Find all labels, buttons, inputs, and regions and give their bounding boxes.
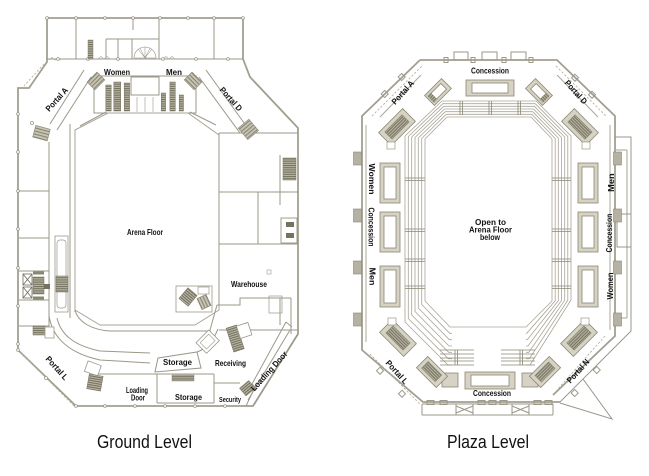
svg-text:Portal D: Portal D [563, 78, 590, 106]
svg-text:Women: Women [605, 273, 615, 300]
svg-text:Plaza Level: Plaza Level [447, 432, 529, 452]
svg-text:Arena Floor: Arena Floor [127, 227, 164, 237]
svg-text:Concession: Concession [604, 214, 614, 253]
svg-text:Storage: Storage [163, 357, 192, 367]
svg-text:Ground Level: Ground Level [97, 432, 192, 452]
svg-text:Storage: Storage [175, 392, 202, 402]
svg-text:Men: Men [368, 268, 378, 286]
svg-text:below: below [480, 232, 500, 242]
svg-text:Door: Door [131, 393, 145, 403]
svg-text:Women: Women [104, 67, 130, 77]
svg-text:Concession: Concession [471, 66, 509, 76]
svg-text:Men: Men [606, 173, 616, 192]
svg-text:Loading Door: Loading Door [249, 349, 290, 393]
svg-text:Concession: Concession [367, 208, 377, 247]
svg-text:Portal N: Portal N [565, 357, 592, 385]
svg-text:Men: Men [166, 67, 182, 77]
svg-text:Receiving: Receiving [215, 358, 246, 368]
svg-text:Portal D: Portal D [218, 85, 245, 113]
svg-text:Concession: Concession [473, 388, 511, 398]
svg-text:Warehouse: Warehouse [231, 279, 267, 289]
svg-text:Portal A: Portal A [389, 78, 416, 106]
svg-text:Security: Security [219, 395, 242, 404]
svg-text:Women: Women [367, 164, 377, 195]
